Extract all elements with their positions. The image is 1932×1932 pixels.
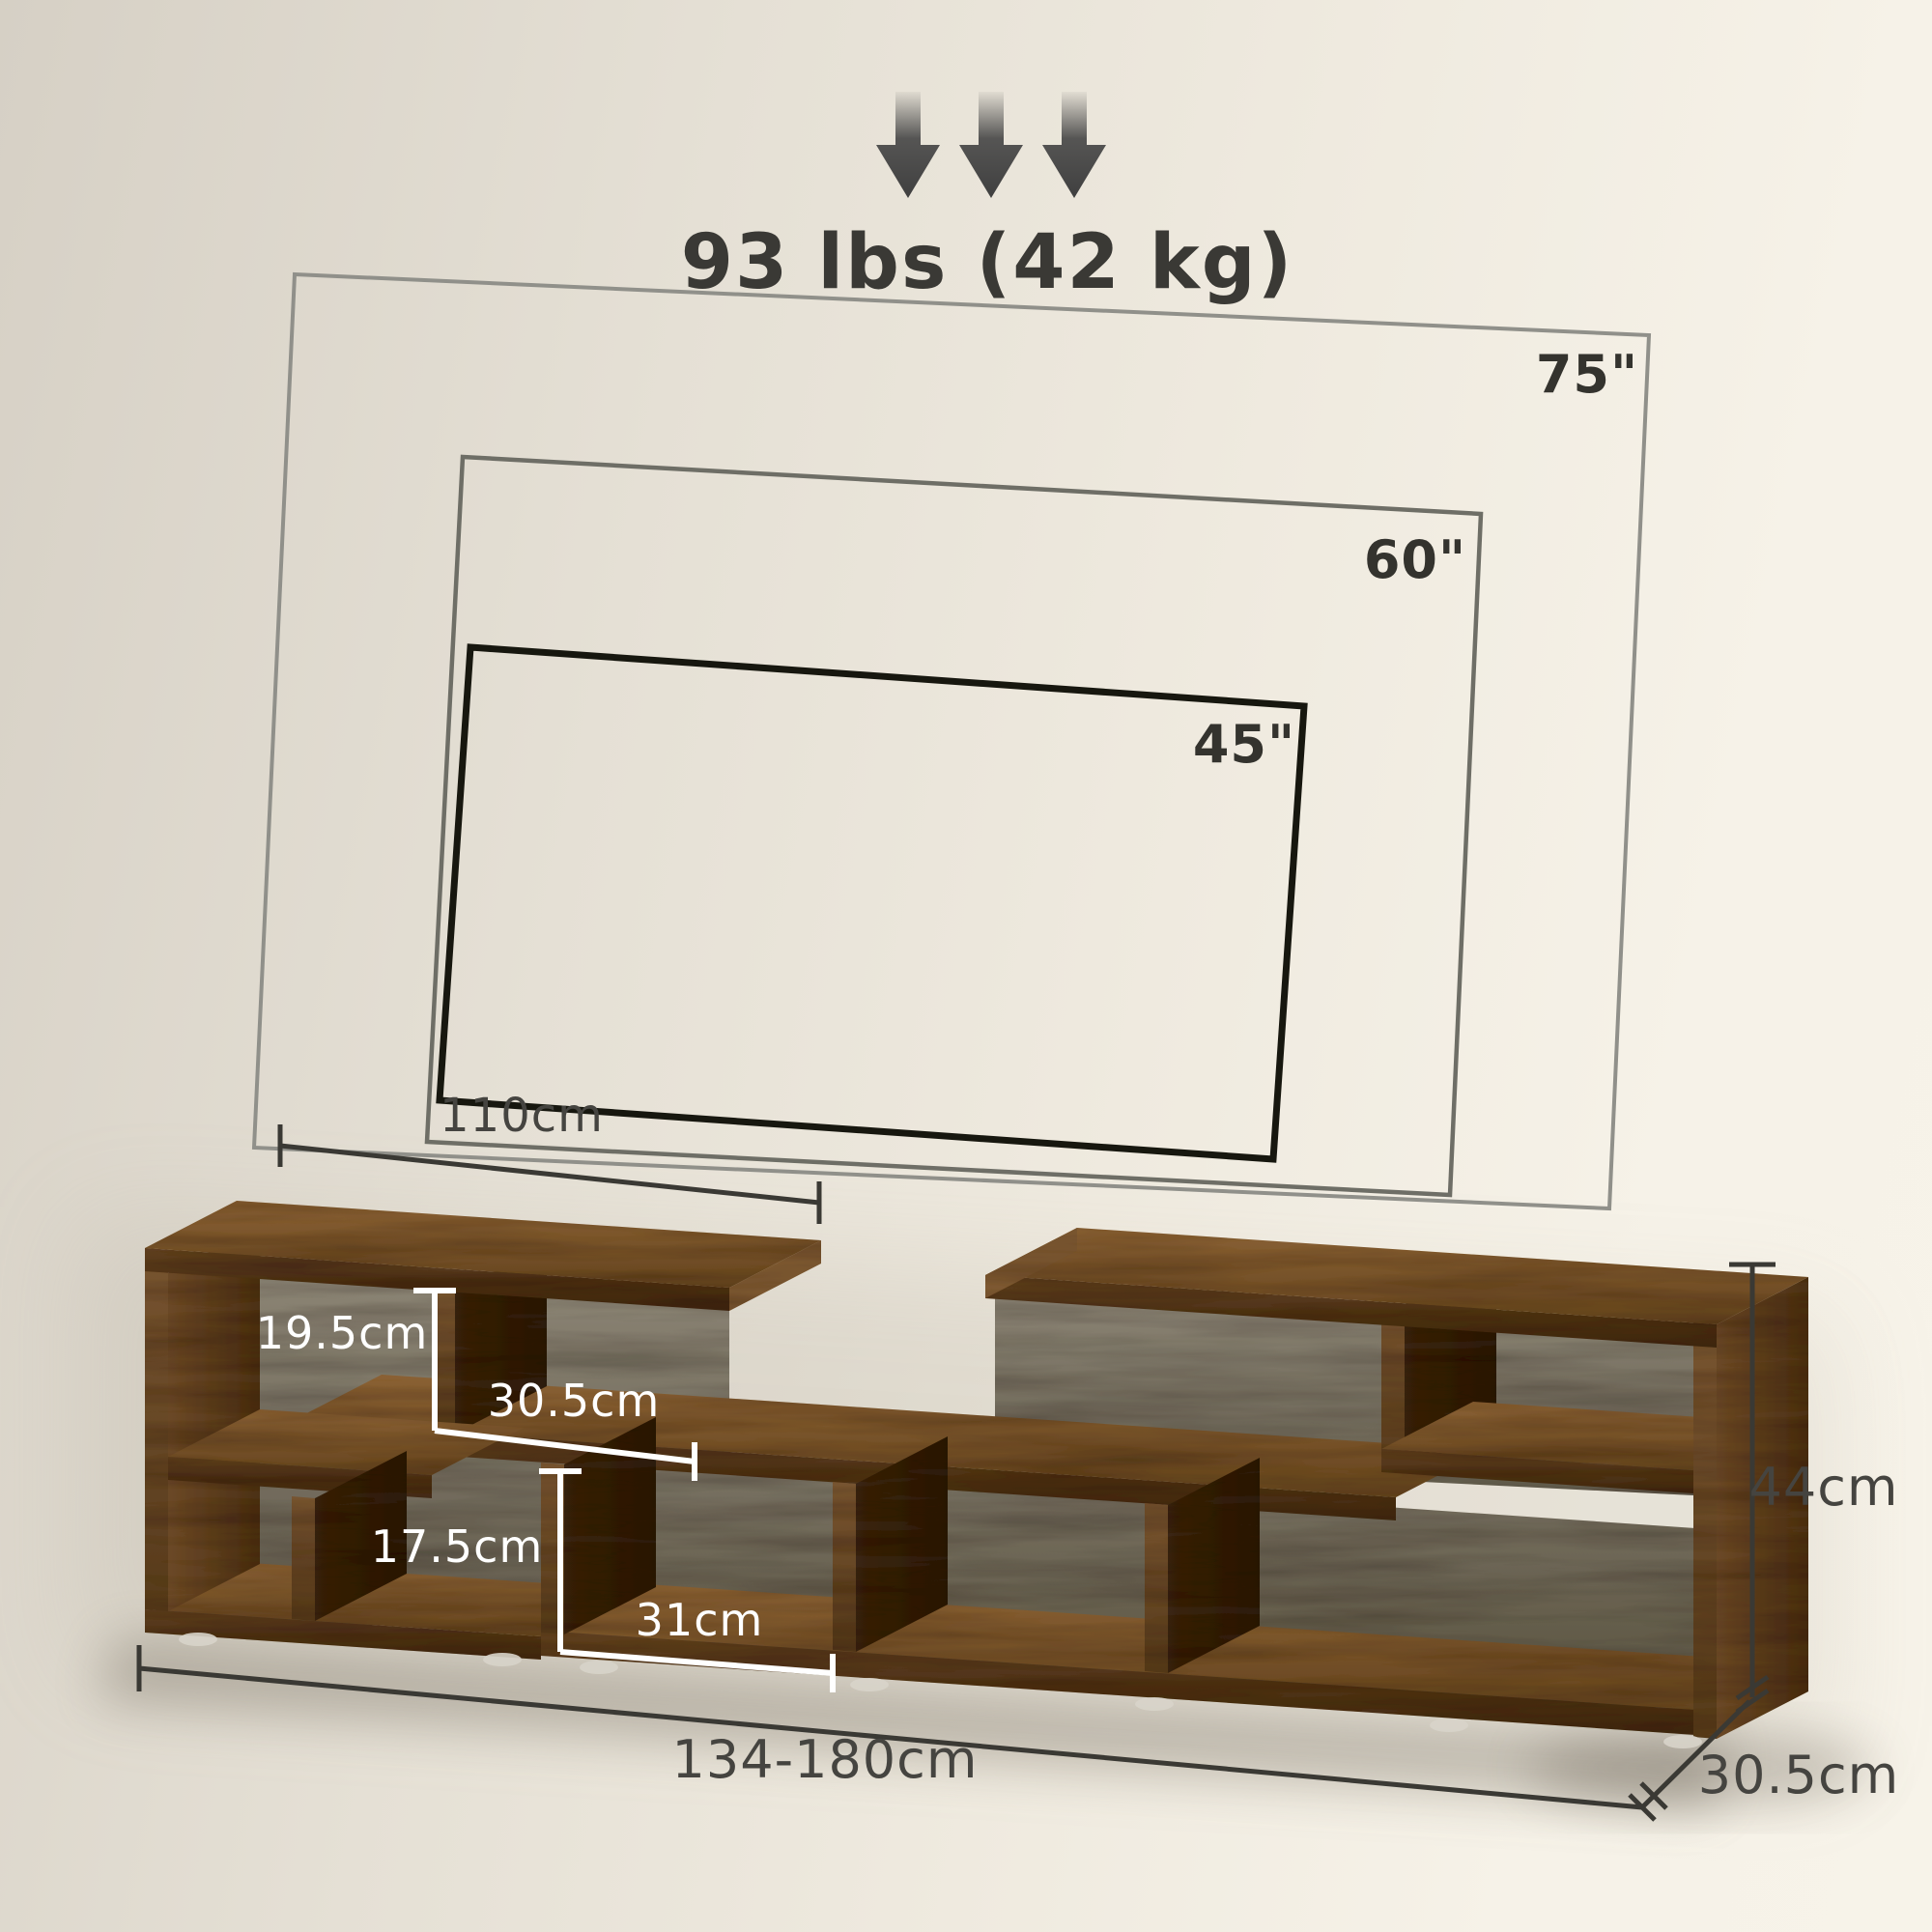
product-dimension-diagram: 93 lbs (42 kg) 75" 60" 45" 110cm 19.5cm … — [0, 0, 1932, 1932]
max-load-label: 93 lbs (42 kg) — [681, 225, 1294, 300]
top-width-label: 110cm — [440, 1093, 604, 1139]
tv-size-outlines — [254, 274, 1649, 1208]
weight-arrows — [876, 92, 1106, 198]
lower-compartment-width-label: 31cm — [636, 1598, 764, 1642]
down-arrow-icon — [876, 92, 940, 198]
lower-compartment-height-label: 17.5cm — [371, 1524, 544, 1569]
tv-size-60-label: 60" — [1364, 534, 1466, 586]
tv-outline-45 — [440, 647, 1304, 1159]
left-lower-divider-front — [292, 1496, 315, 1621]
overall-height-label: 44cm — [1748, 1462, 1898, 1514]
bottom-board-3-front — [1145, 1503, 1168, 1673]
tv-outline-60 — [427, 457, 1481, 1195]
down-arrow-icon — [1042, 92, 1106, 198]
adjustable-width-label: 134-180cm — [672, 1734, 979, 1786]
down-arrow-icon — [959, 92, 1023, 198]
right-panel-front-edge — [1693, 1322, 1717, 1739]
upper-compartment-width-label: 30.5cm — [488, 1378, 661, 1423]
tv-size-45-label: 45" — [1193, 719, 1295, 771]
left-panel-front-edge — [145, 1248, 168, 1611]
upper-compartment-height-label: 19.5cm — [256, 1311, 429, 1355]
depth-label: 30.5cm — [1698, 1749, 1900, 1802]
bottom-board-2-front — [833, 1482, 856, 1652]
tv-size-75-label: 75" — [1536, 349, 1638, 401]
